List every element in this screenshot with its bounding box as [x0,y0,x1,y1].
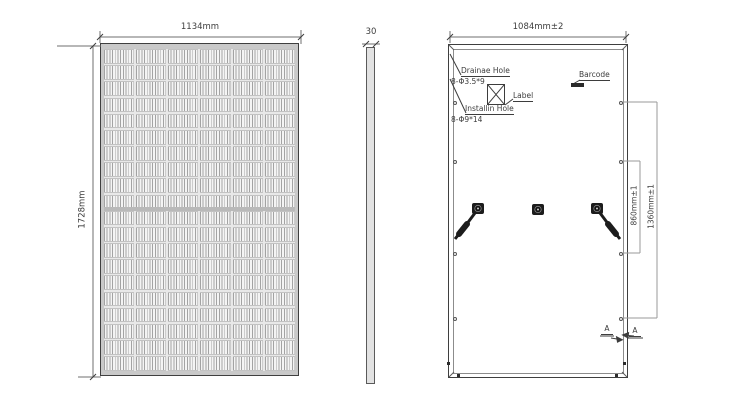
hole-span-dimension: 860mm±1 [630,183,639,229]
junction-box-right [591,203,620,239]
label-callout: Label [513,91,533,102]
front-dimensions [57,30,304,380]
front-width-dimension: 1134mm [165,23,235,32]
section-marker-left: A [601,324,613,335]
install-hole-callout: Installin Hole [465,104,514,115]
junction-boxes [455,203,620,239]
section-marker-right: A [629,326,641,337]
junction-box-left [455,203,484,239]
mechanical-drawing-canvas: 1134mm 1728mm 30 1084mm±2 860mm±1 1360mm… [0,0,751,400]
outer-hole-span-dimension: 1360mm±1 [647,182,656,232]
install-hole-spec: 8-Φ9*14 [451,115,482,124]
back-width-dimension: 1084mm±2 [498,23,578,32]
side-dimensions [362,41,380,47]
front-height-dimension: 1728mm [79,188,88,232]
junction-box-middle [532,204,544,215]
drainage-hole-spec: 8-Φ3.5*9 [451,77,485,86]
side-thickness-dimension: 30 [356,28,386,37]
drainage-hole-callout: Drainae Hole [461,66,510,77]
barcode-mark [571,83,584,87]
barcode-callout: Barcode [579,70,610,81]
